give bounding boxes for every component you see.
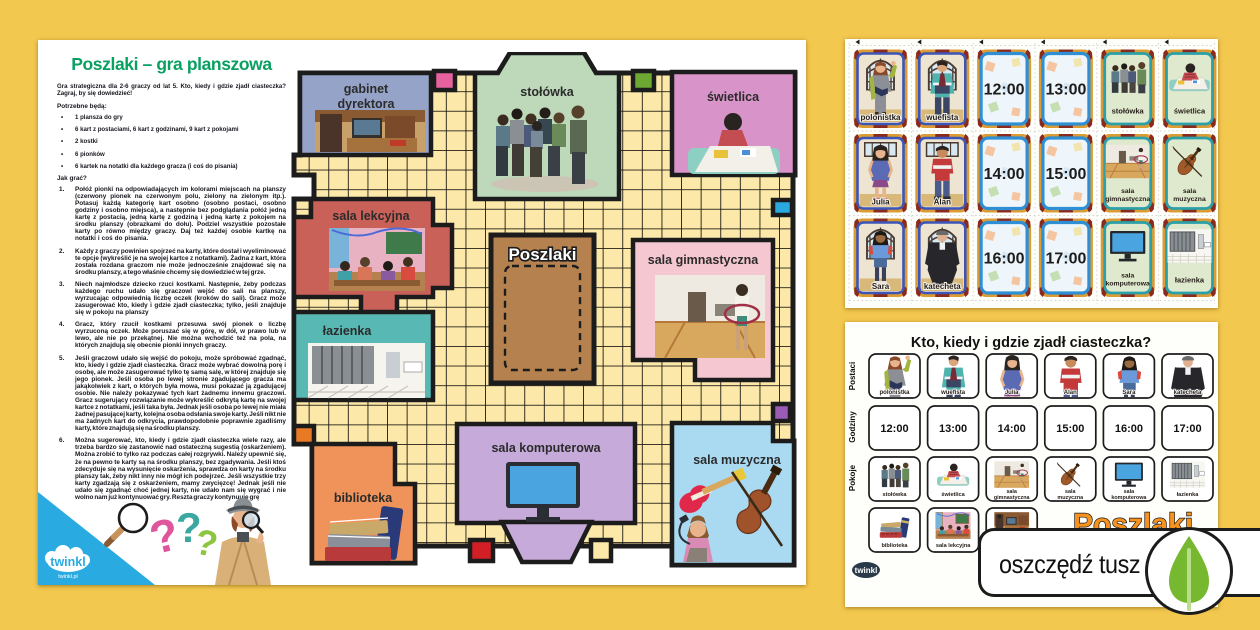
svg-text:Alan: Alan xyxy=(1064,390,1077,396)
svg-text:polonistka: polonistka xyxy=(879,390,910,396)
svg-text:twinkl: twinkl xyxy=(855,566,878,575)
svg-text:sala gimnastyczna: sala gimnastyczna xyxy=(648,253,760,267)
svg-text:sala lekcyjna: sala lekcyjna xyxy=(936,543,971,549)
svg-text:Julia: Julia xyxy=(871,198,890,207)
svg-text:15:00: 15:00 xyxy=(1045,166,1086,183)
svg-text:dyrektora: dyrektora xyxy=(338,97,396,111)
svg-text:sala komputerowa: sala komputerowa xyxy=(491,441,601,455)
svg-text:13:00: 13:00 xyxy=(1045,82,1086,99)
svg-text:katecheta: katecheta xyxy=(1174,390,1202,396)
svg-text:sala: sala xyxy=(1121,273,1134,280)
svg-text:Pokoje: Pokoje xyxy=(848,464,857,491)
svg-text:Julia: Julia xyxy=(1005,390,1019,396)
svg-text:komputerowa: komputerowa xyxy=(1111,495,1147,501)
svg-text:Postaci: Postaci xyxy=(848,362,857,390)
svg-text:gimnastyczna: gimnastyczna xyxy=(1105,196,1150,203)
svg-text:17:00: 17:00 xyxy=(1173,423,1201,435)
svg-text:stołówka: stołówka xyxy=(520,85,575,99)
svg-text:gimnastyczna: gimnastyczna xyxy=(994,495,1031,501)
svg-text:łazienka: łazienka xyxy=(1177,492,1200,498)
svg-text:gabinet: gabinet xyxy=(344,82,389,96)
svg-text:świetlica: świetlica xyxy=(1174,107,1206,116)
svg-text:Kto, kiedy i gdzie zjadł ciast: Kto, kiedy i gdzie zjadł ciasteczka? xyxy=(911,335,1151,351)
svg-text:Alan: Alan xyxy=(934,198,951,207)
svg-text:12:00: 12:00 xyxy=(984,82,1025,99)
svg-text:12:00: 12:00 xyxy=(880,423,908,435)
svg-text:sala: sala xyxy=(1183,188,1196,195)
svg-text:Sara: Sara xyxy=(1122,390,1136,396)
svg-text:łazienka: łazienka xyxy=(323,324,373,338)
svg-text:sala: sala xyxy=(1121,188,1134,195)
svg-text:17:00: 17:00 xyxy=(1045,251,1086,268)
svg-text:polonistka: polonistka xyxy=(860,113,901,122)
svg-text:14:00: 14:00 xyxy=(984,166,1025,183)
svg-text:stołówka: stołówka xyxy=(883,492,908,498)
svg-text:14:00: 14:00 xyxy=(998,423,1026,435)
svg-text:sala muzyczna: sala muzyczna xyxy=(693,453,782,467)
svg-text:stołówka: stołówka xyxy=(1112,107,1145,116)
svg-text:Poszlaki: Poszlaki xyxy=(508,245,576,264)
svg-text:16:00: 16:00 xyxy=(984,251,1025,268)
svg-text:świetlica: świetlica xyxy=(941,492,965,498)
svg-text:muzyczna: muzyczna xyxy=(1057,495,1084,501)
svg-text:twinkl.pl: twinkl.pl xyxy=(58,574,78,580)
svg-text:biblioteka: biblioteka xyxy=(334,491,393,505)
svg-text:Sara: Sara xyxy=(872,282,890,291)
svg-text:Godziny: Godziny xyxy=(848,411,857,443)
svg-text:twinkl: twinkl xyxy=(50,555,85,569)
svg-text:katecheta: katecheta xyxy=(924,282,961,291)
svg-text:łazienka: łazienka xyxy=(1175,276,1205,285)
svg-text:muzyczna: muzyczna xyxy=(1173,196,1206,203)
svg-text:biblioteka: biblioteka xyxy=(881,543,908,549)
svg-text:świetlica: świetlica xyxy=(707,90,760,104)
svg-text:16:00: 16:00 xyxy=(1115,423,1143,435)
svg-text:sala lekcyjna: sala lekcyjna xyxy=(332,209,410,223)
svg-text:15:00: 15:00 xyxy=(1056,423,1084,435)
svg-text:13:00: 13:00 xyxy=(939,423,967,435)
svg-text:wuefista: wuefista xyxy=(925,113,959,122)
svg-text:komputerowa: komputerowa xyxy=(1106,281,1150,288)
svg-text:wuefista: wuefista xyxy=(940,390,966,396)
